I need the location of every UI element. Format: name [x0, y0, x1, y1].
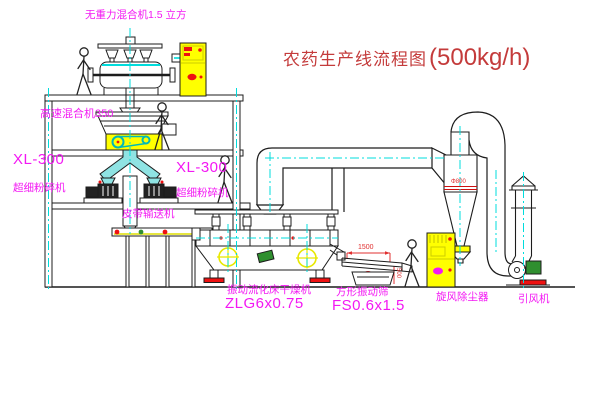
label-dryer-name: 振动流化床干燥机 [227, 285, 311, 296]
dimension-sieve-length: 1500 [358, 244, 374, 251]
label-fan: 引风机 [518, 294, 550, 305]
label-mill-center-model: XL-300 [176, 160, 227, 175]
page-title: 农药生产线流程图 (500kg/h) [283, 44, 530, 72]
label-mill-center-name: 超细粉碎机 [176, 188, 229, 199]
label-sieve-name: 方形振动筛 [336, 287, 389, 298]
mill-left [84, 178, 122, 203]
dimension-sieve-height: 500 [395, 268, 401, 278]
label-cyclone: 旋风除尘器 [436, 292, 489, 303]
title-text: 农药生产线流程图 [283, 45, 427, 70]
flow-diagram-canvas: 无重力混合机1.5 立方 农药生产线流程图 (500kg/h) 高速混合机350… [0, 0, 600, 403]
dimension-cyclone-diameter: Φ800 [451, 179, 466, 185]
label-dryer-model: ZLG6x0.75 [225, 296, 304, 311]
control-cabinet-upper [180, 43, 206, 96]
label-mill-left-name: 超细粉碎机 [13, 183, 66, 194]
fluid-bed-dryer [192, 210, 344, 283]
mill-right [140, 178, 178, 203]
label-high-speed-mixer: 高速混合机350 [40, 109, 113, 120]
label-mill-left-model: XL-300 [13, 152, 64, 167]
label-sieve-model: FS0.6x1.5 [332, 298, 405, 313]
label-belt-conveyor: 皮带输送机 [122, 209, 175, 220]
title-capacity: (500kg/h) [429, 44, 530, 72]
label-gravity-mixer: 无重力混合机1.5 立方 [85, 10, 187, 21]
person-figure-ground [405, 240, 419, 287]
control-cabinet-lower [427, 233, 455, 287]
draft-fan [506, 261, 550, 285]
